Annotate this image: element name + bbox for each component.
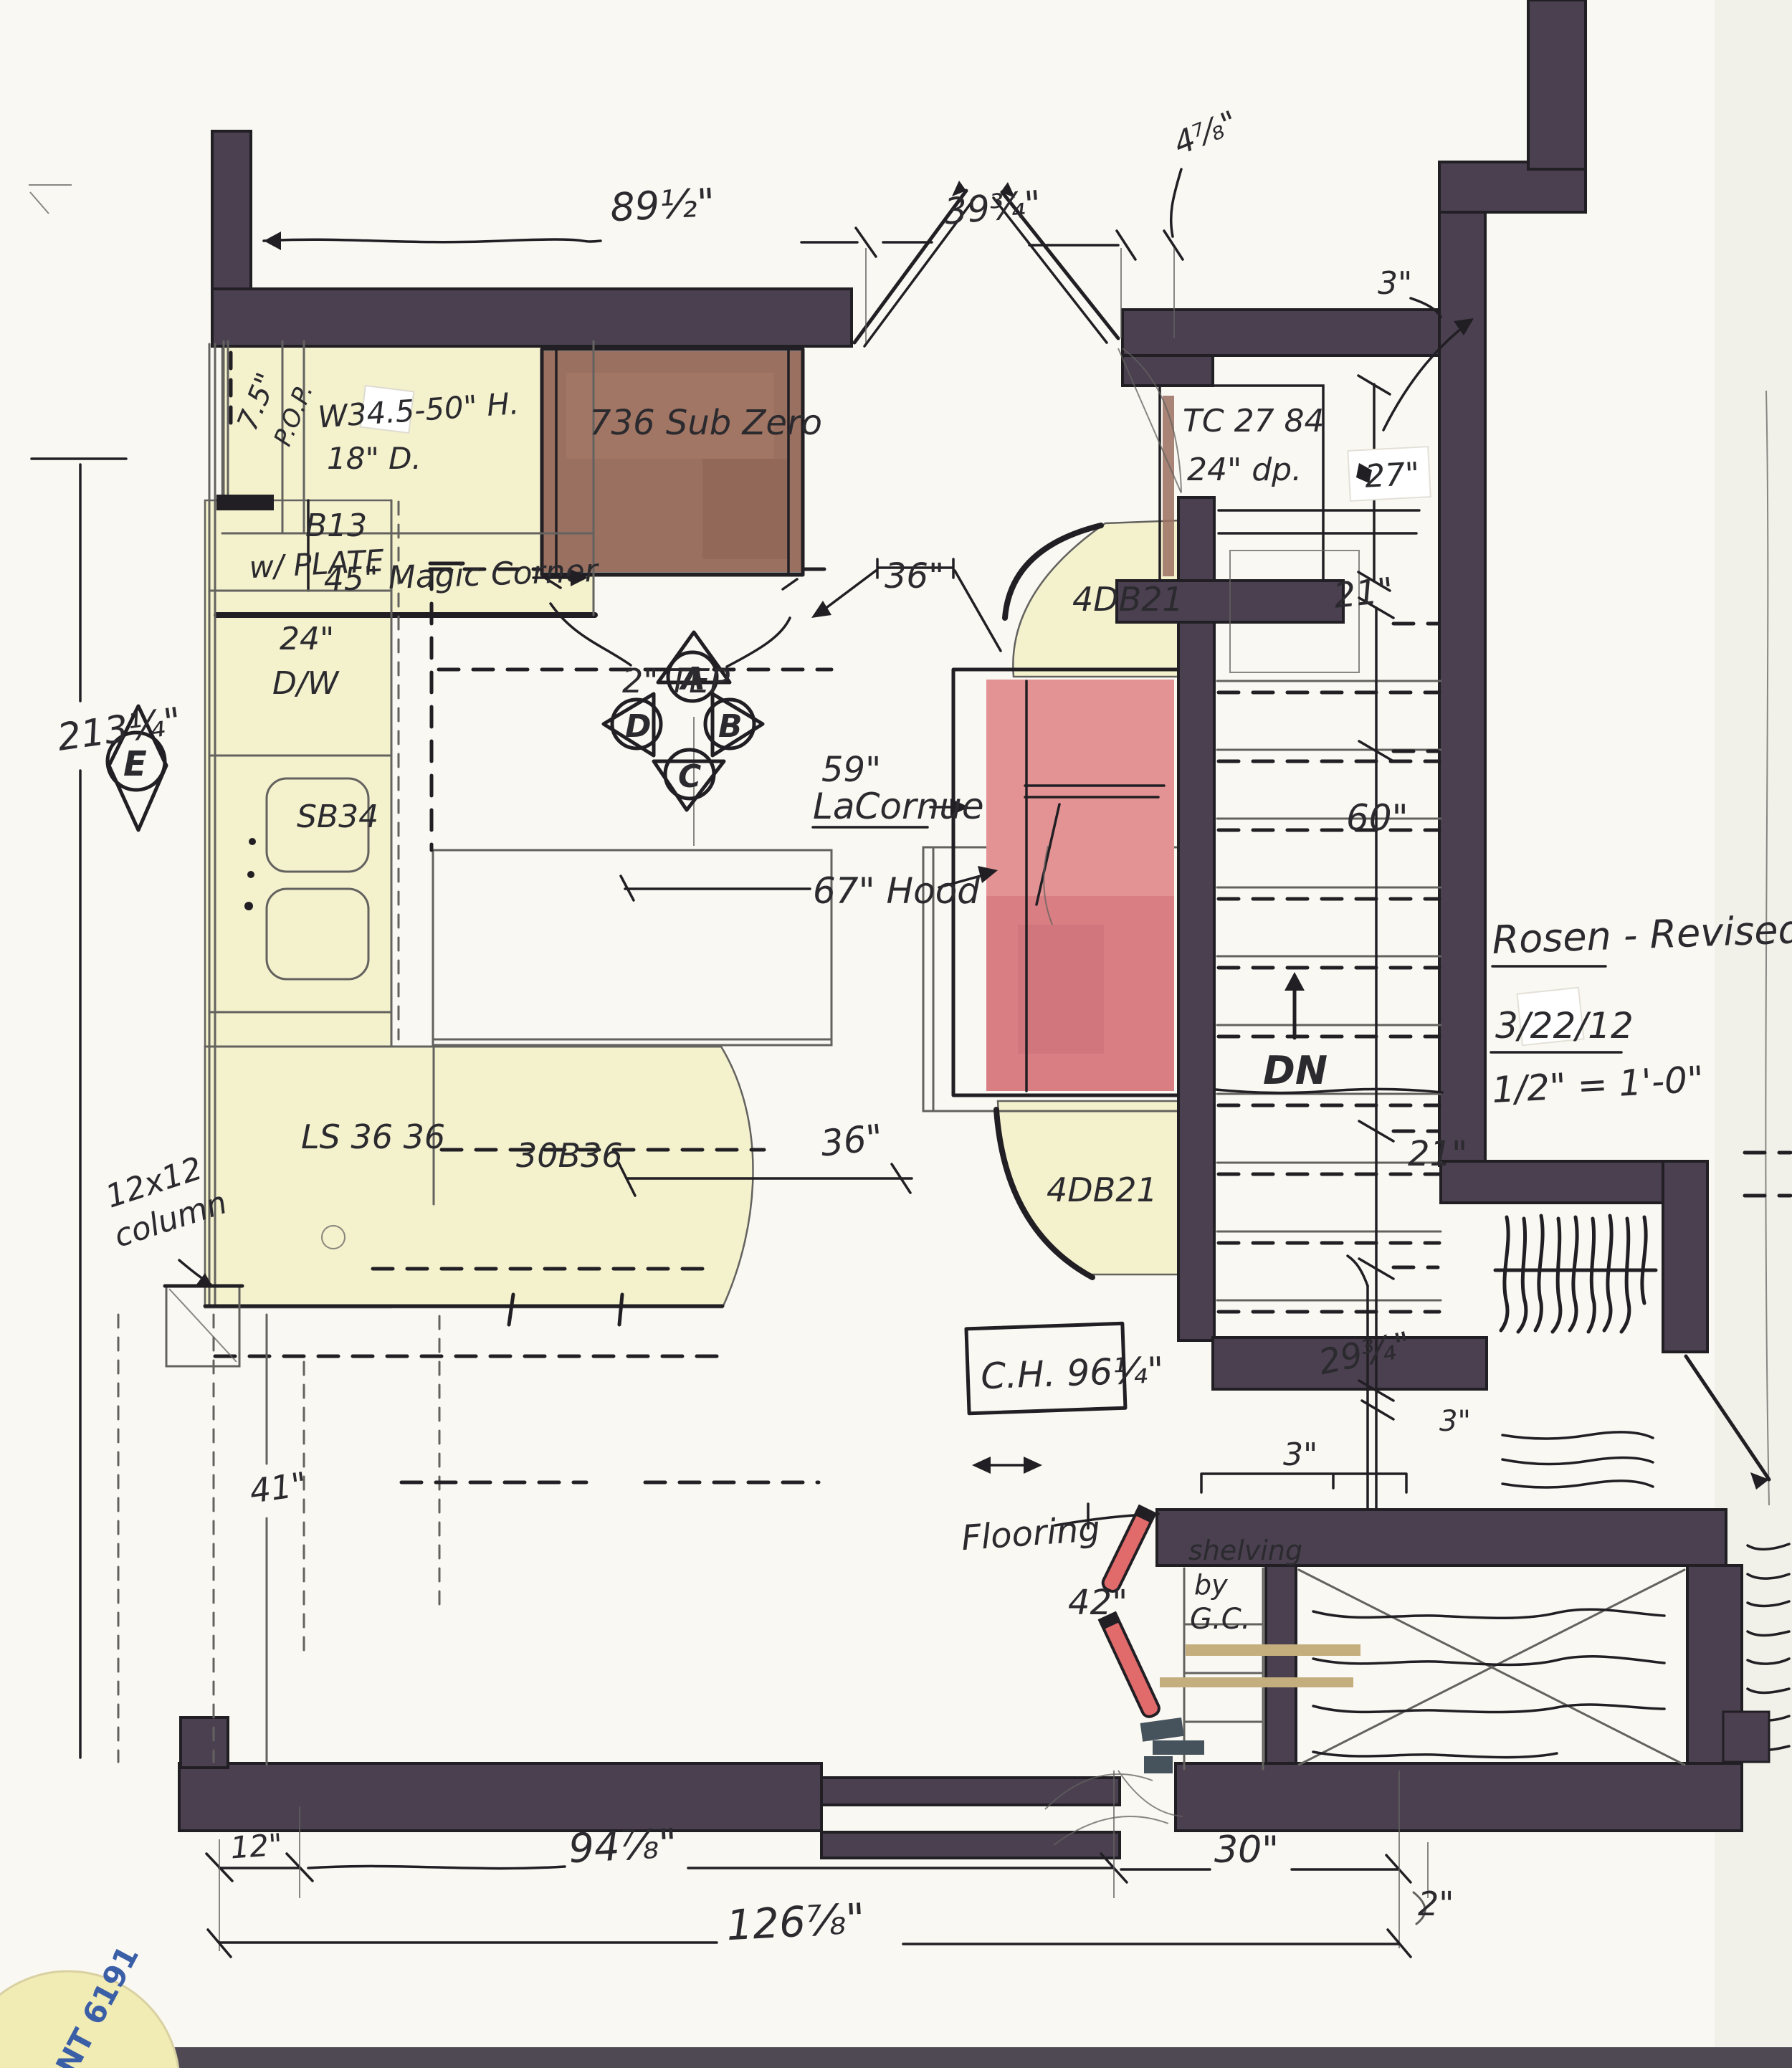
label-shelving-3: G.C.	[1190, 1603, 1250, 1636]
wall-bottom-left-stub	[181, 1717, 228, 1768]
label-ls3636: LS 36 36	[301, 1118, 445, 1156]
wall-bottom	[179, 1763, 821, 1831]
label-tc-depth: 24" dp.	[1187, 452, 1302, 488]
dim-30: 30"	[1214, 1829, 1279, 1872]
wall-top-corner	[1528, 0, 1586, 169]
dim-126: 126⅞"	[725, 1894, 866, 1950]
range-fill-top	[986, 680, 1174, 896]
label-b13: B13	[305, 508, 367, 544]
wall-mid-stairs	[1178, 497, 1214, 1340]
dim-3-top: 3"	[1378, 265, 1412, 302]
marker-d-letter: D	[625, 708, 652, 745]
label-sb34: SB34	[297, 799, 378, 835]
wall-top-right	[1123, 310, 1441, 356]
wall-bottom-right	[1176, 1763, 1742, 1831]
label-shelving-2: by	[1194, 1569, 1228, 1601]
dim-60: 60"	[1346, 797, 1409, 839]
label-tc: TC 27 84	[1183, 403, 1325, 439]
wall-bottom-thin-a	[821, 1778, 1120, 1805]
label-lacornue: LaCornue	[813, 786, 984, 827]
dim-94: 94⅞"	[568, 1820, 678, 1872]
dim-89-5: 89½"	[609, 180, 716, 231]
dim-42: 42"	[1068, 1583, 1128, 1623]
label-30b36: 30B36	[516, 1136, 623, 1175]
marker-b-letter: B	[718, 708, 743, 745]
label-dn: DN	[1263, 1048, 1328, 1093]
label-wall-cab-depth: 18" D.	[327, 441, 421, 476]
wall-bottom-thin-b	[821, 1832, 1120, 1858]
tc-brown-strip	[1163, 396, 1174, 576]
shelf-board-2	[1160, 1677, 1353, 1687]
wall-top	[212, 289, 852, 346]
dim-36-mid: 36"	[819, 1117, 885, 1165]
floor-plan-canvas: INT 6191	[0, 0, 1792, 2068]
dim-36-top: 36"	[885, 556, 944, 596]
label-db21-bottom: 4DB21	[1047, 1171, 1158, 1209]
dim-2: 2"	[1418, 1884, 1454, 1923]
door-hardware-block	[1723, 1712, 1769, 1762]
dim-21-bottom: 21"	[1408, 1134, 1467, 1174]
marker-c-letter: C	[678, 758, 701, 795]
dim-39-75: 39¾"	[943, 183, 1043, 233]
dim-3-low: 3"	[1283, 1436, 1317, 1473]
floor-plan-sheet: INT 6191	[0, 0, 1792, 2068]
dim-21-top: 21"	[1332, 570, 1396, 616]
label-dw: D/W	[272, 665, 340, 702]
pen-scribble-b13	[216, 495, 274, 510]
dim-ch: C.H. 96¼"	[980, 1349, 1164, 1397]
label-hood: 67" Hood	[813, 870, 980, 912]
label-rosen-date: 3/22/12	[1495, 1005, 1634, 1047]
label-db21-top: 4DB21	[1072, 580, 1183, 619]
wall-shelving	[1266, 1566, 1296, 1772]
label-tep: 2" TEP	[622, 662, 730, 700]
dim-3-right: 3"	[1439, 1405, 1471, 1438]
dim-41: 41"	[247, 1464, 309, 1511]
dim-27: 27"	[1364, 456, 1421, 495]
dim-12: 12"	[229, 1827, 284, 1866]
label-b13-plate: w/ PLATE	[248, 543, 385, 585]
shelf-board-1	[1186, 1644, 1360, 1656]
label-shelving-1: shelving	[1188, 1535, 1302, 1566]
label-dw-size: 24"	[280, 621, 334, 657]
label-subzero: 736 Sub Zero	[589, 403, 822, 443]
label-lacornue-size: 59"	[821, 750, 881, 790]
wall-right	[1439, 162, 1485, 1166]
wall-closet-right	[1663, 1161, 1707, 1352]
